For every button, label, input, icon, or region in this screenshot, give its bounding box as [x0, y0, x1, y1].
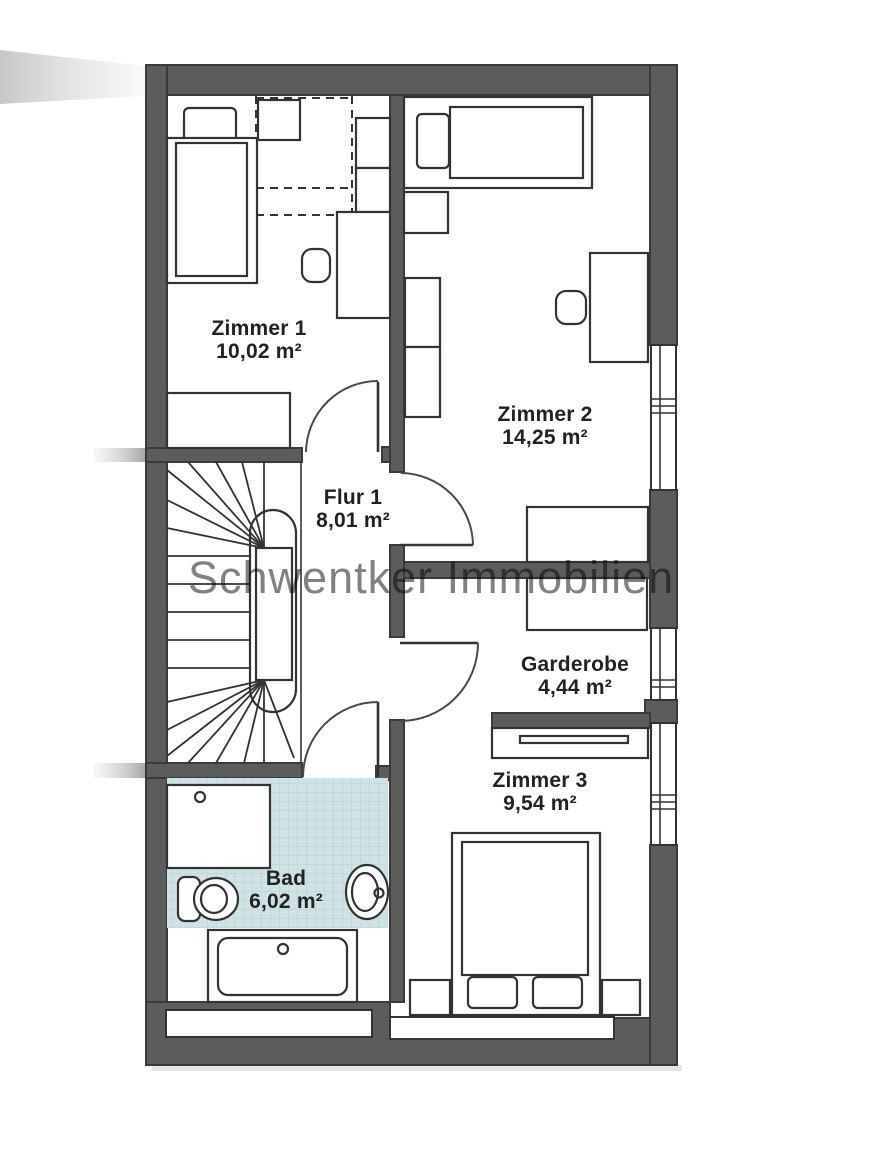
shelf — [404, 192, 448, 233]
window-zimmer2 — [651, 345, 676, 490]
sideboard — [167, 393, 290, 448]
bed-pillow — [533, 977, 582, 1008]
room-label-bad: Bad 6,02 m² — [249, 867, 323, 913]
wardrobe — [405, 347, 440, 417]
cupboard — [258, 100, 300, 140]
window-zimmer3-east — [651, 723, 676, 845]
room-name: Zimmer 3 — [493, 769, 588, 792]
party-wall-stub-lower — [94, 763, 148, 778]
door-zimmer1 — [306, 381, 378, 452]
shower — [167, 785, 270, 868]
window-zimmer3-south — [390, 1017, 614, 1039]
room-label-garderobe: Garderobe 4,44 m² — [521, 653, 629, 699]
bed-pillow — [417, 114, 449, 168]
room-label-zimmer3: Zimmer 3 9,54 m² — [493, 769, 588, 815]
room-area: 4,44 m² — [521, 676, 629, 699]
bathtub — [208, 930, 357, 1002]
nightstand — [410, 980, 450, 1015]
door-bad — [303, 702, 378, 777]
room-name: Zimmer 1 — [212, 317, 307, 340]
room-area: 14,25 m² — [498, 426, 593, 449]
wardrobe — [405, 278, 440, 347]
bed-pillow — [468, 977, 517, 1008]
chair — [556, 291, 586, 324]
desk — [590, 253, 648, 362]
room-name: Zimmer 2 — [498, 403, 593, 426]
shelf — [356, 118, 390, 168]
room-area: 6,02 m² — [249, 890, 323, 913]
bed-pillow — [184, 108, 236, 142]
sink — [346, 865, 388, 919]
furniture-zimmer1 — [167, 96, 390, 448]
desk — [337, 212, 390, 318]
room-name: Garderobe — [521, 653, 629, 676]
room-name: Bad — [249, 867, 323, 890]
furniture-zimmer2 — [404, 97, 648, 562]
room-label-zimmer1: Zimmer 1 10,02 m² — [212, 317, 307, 363]
door-garderobe — [400, 643, 478, 721]
room-area: 8,01 m² — [316, 509, 390, 532]
room-area: 10,02 m² — [212, 340, 307, 363]
watermark: Schwentker Immobilien — [188, 552, 674, 604]
nightstand — [602, 980, 640, 1015]
room-area: 9,54 m² — [493, 792, 588, 815]
room-name: Flur 1 — [316, 486, 390, 509]
window-bad-south — [166, 1010, 372, 1037]
door-zimmer2 — [400, 473, 473, 545]
window-garderobe — [651, 628, 676, 700]
toilet — [178, 877, 238, 921]
floorplan-image: Zimmer 1 10,02 m² Zimmer 2 14,25 m² Flur… — [0, 0, 870, 1152]
scan-smudge — [0, 50, 146, 104]
shelf — [356, 168, 390, 212]
chair — [302, 249, 330, 282]
staircase — [167, 462, 301, 763]
room-label-zimmer2: Zimmer 2 14,25 m² — [498, 403, 593, 449]
party-wall-stub-upper — [94, 448, 148, 462]
room-label-flur1: Flur 1 8,01 m² — [316, 486, 390, 532]
